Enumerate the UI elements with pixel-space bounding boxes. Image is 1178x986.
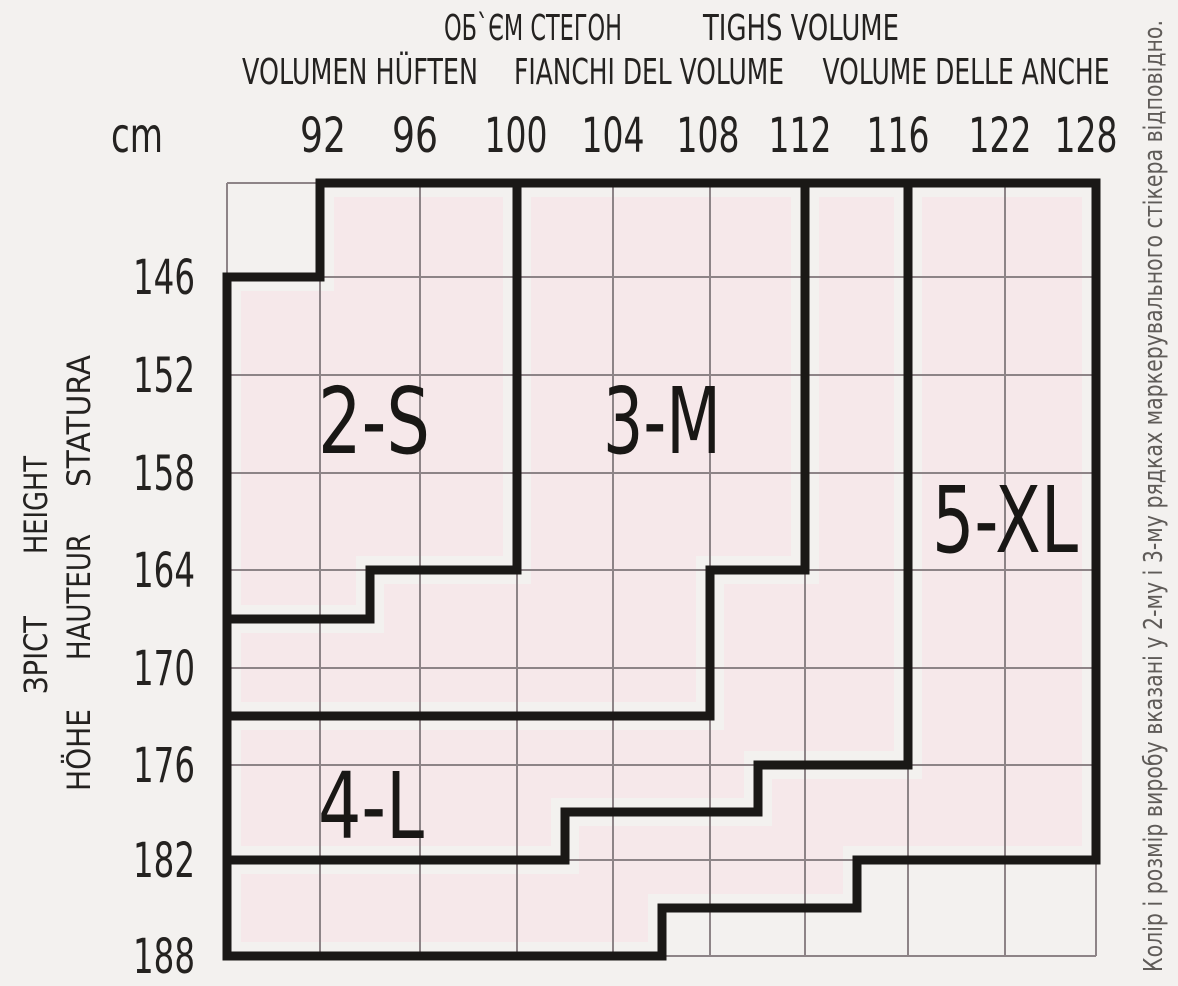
header-volume-de: VOLUMEN HÜFTEN xyxy=(242,51,478,93)
x-tick-104: 104 xyxy=(582,108,645,164)
zone-label-3-m: 3-M xyxy=(603,368,721,475)
zone-label-2-s: 2-S xyxy=(318,368,430,475)
y-tick-188: 188 xyxy=(133,929,195,985)
header-volume-en: TIGHS VOLUME xyxy=(702,8,899,49)
y-tick-164: 164 xyxy=(133,543,195,599)
y-tick-176: 176 xyxy=(133,738,195,794)
x-tick-92: 92 xyxy=(300,108,346,164)
height-label-fr: HAUTEUR xyxy=(60,534,98,660)
x-tick-128: 128 xyxy=(1055,108,1118,164)
y-tick-146: 146 xyxy=(133,250,195,306)
height-label-de: HÖHE xyxy=(60,709,98,791)
x-tick-112: 112 xyxy=(769,108,832,164)
y-tick-182: 182 xyxy=(133,833,195,889)
y-tick-158: 158 xyxy=(133,446,195,502)
x-tick-100: 100 xyxy=(485,108,548,164)
header-volume-it: FIANCHI DEL VOLUME xyxy=(514,52,784,93)
x-tick-108: 108 xyxy=(677,108,740,164)
x-tick-116: 116 xyxy=(867,108,930,164)
size-chart: cm92961001041081121161221281461521581641… xyxy=(0,0,1178,986)
y-tick-152: 152 xyxy=(133,348,195,404)
x-tick-96: 96 xyxy=(392,108,438,164)
y-tick-170: 170 xyxy=(133,641,195,697)
x-axis-unit: cm xyxy=(111,108,163,164)
zone-label-5-xl: 5-XL xyxy=(932,467,1078,574)
header-volume-it2: VOLUME DELLE ANCHE xyxy=(823,52,1110,93)
height-label-en: HEIGHT xyxy=(17,456,55,554)
sticker-note: Колір і розмір виробу вказані у 2-му і 3… xyxy=(1139,20,1169,972)
x-tick-122: 122 xyxy=(969,108,1032,164)
height-label-uk: ЗРІСТ xyxy=(17,616,55,694)
height-label-it: STATURA xyxy=(60,355,98,487)
zone-label-4-l: 4-L xyxy=(318,753,424,860)
header-volume-uk: ОБ`ЄМ СТЕГОН xyxy=(444,8,622,49)
